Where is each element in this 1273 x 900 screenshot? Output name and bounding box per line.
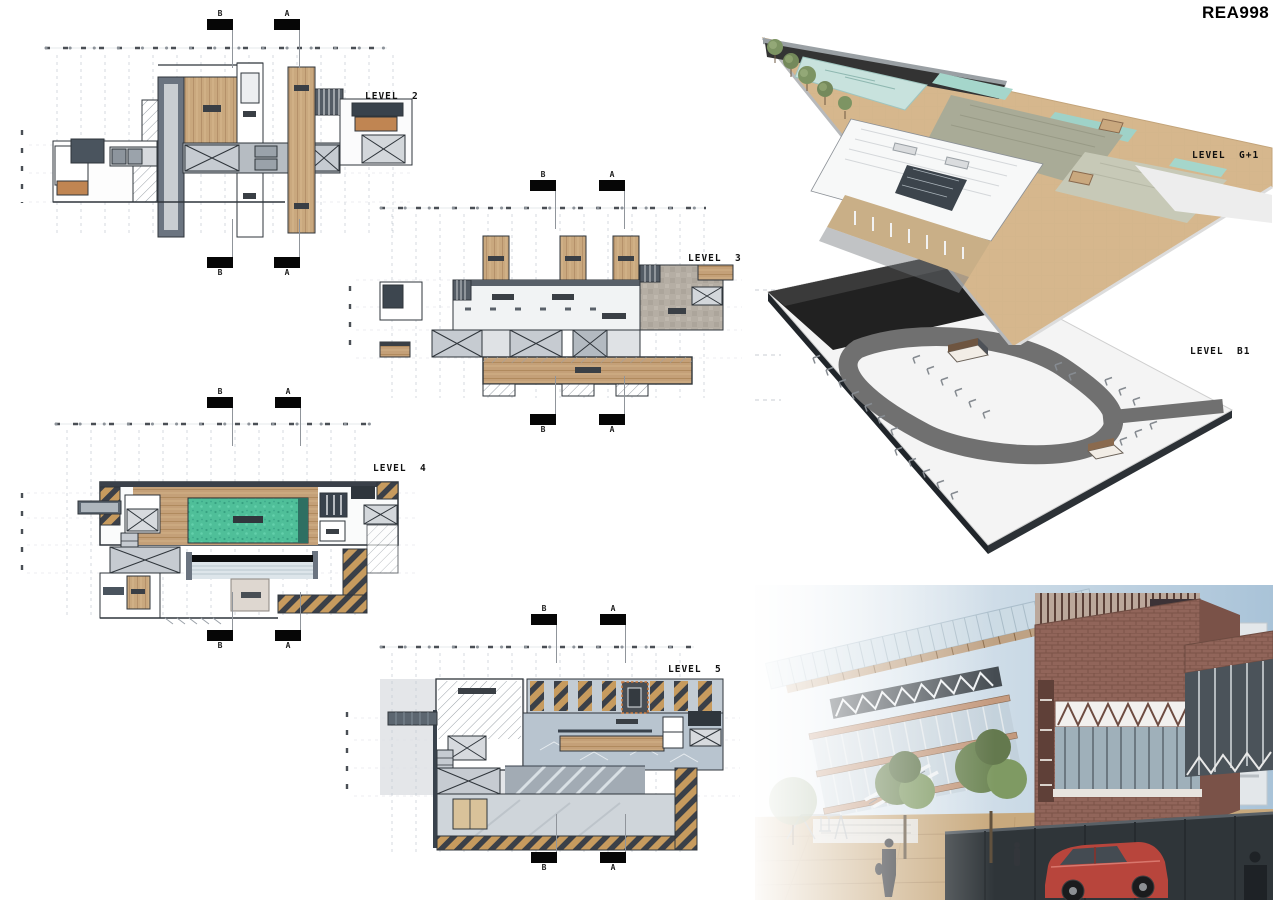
marker-letter: A: [611, 863, 616, 873]
shaft-x-terrace: [692, 287, 722, 305]
shaft-x-3: [362, 135, 405, 163]
cantilever-volume: [1185, 631, 1273, 777]
shaft-x-big: [110, 547, 180, 573]
floor-plan-level-5: LEVEL 5 B A B A: [330, 600, 762, 888]
marker-stem: [300, 592, 301, 630]
marker-flag: [530, 180, 556, 191]
truss-band: [1055, 701, 1200, 727]
section-marker-a-bottom: A: [596, 814, 630, 873]
section-marker-a-top: A: [271, 387, 305, 446]
marker-stem: [299, 30, 300, 68]
marker-stem: [625, 814, 626, 852]
section-marker-b-top: B: [526, 170, 560, 229]
marker-letter: B: [541, 425, 546, 435]
marker-letter: B: [218, 268, 223, 278]
section-marker-b-top: B: [203, 387, 237, 446]
level-4-label: LEVEL 4: [373, 463, 427, 474]
axonometric-level-g1: LEVEL G+1: [755, 15, 1273, 345]
marker-stem: [556, 814, 557, 852]
level-b1-label: LEVEL B1: [1190, 346, 1250, 357]
level-3-label: LEVEL 3: [688, 253, 742, 264]
marker-stem: [624, 191, 625, 229]
level-2-label: LEVEL 2: [365, 91, 419, 102]
marker-letter: A: [610, 170, 615, 180]
marker-flag: [275, 397, 301, 408]
section-marker-a-bottom: A: [595, 376, 629, 435]
marker-letter: B: [218, 387, 223, 397]
shaft-x-1: [185, 145, 239, 171]
level-g1-drawing: [755, 15, 1273, 345]
marker-flag: [530, 414, 556, 425]
marker-letter: A: [611, 604, 616, 614]
marker-letter: B: [542, 604, 547, 614]
marker-stem: [556, 625, 557, 663]
marker-flag: [207, 257, 233, 268]
pool: [188, 498, 308, 543]
marker-flag: [600, 614, 626, 625]
section-marker-b-top: B: [527, 604, 561, 663]
marker-stem: [555, 191, 556, 229]
section-marker-b-bottom: B: [527, 814, 561, 873]
level-3-plan-body: [380, 236, 733, 396]
shaft-x-room: [448, 736, 486, 760]
section-marker-a-bottom: A: [271, 592, 305, 651]
shaft-x-3: [573, 330, 607, 357]
marker-letter: B: [218, 641, 223, 651]
marker-flag: [207, 19, 233, 30]
shaft-x-right: [690, 729, 721, 746]
marker-letter: B: [218, 9, 223, 19]
marker-stem: [299, 219, 300, 257]
marker-flag: [599, 414, 625, 425]
marker-letter: A: [285, 268, 290, 278]
section-marker-a-top: A: [270, 9, 304, 68]
marker-letter: A: [286, 641, 291, 651]
shaft-x-right: [364, 505, 397, 524]
marker-flag: [274, 19, 300, 30]
pedestrian-mid: [1014, 842, 1020, 866]
section-marker-b-top: B: [203, 9, 237, 68]
exterior-render: [755, 585, 1273, 900]
marker-stem: [300, 408, 301, 446]
section-marker-a-top: A: [596, 604, 630, 663]
marker-flag: [275, 630, 301, 641]
marker-letter: A: [610, 425, 615, 435]
shaft-x-2: [510, 330, 562, 357]
section-marker-a-top: A: [595, 170, 629, 229]
marker-stem: [232, 408, 233, 446]
marker-flag: [599, 180, 625, 191]
marker-stem: [624, 376, 625, 414]
section-marker-a-bottom: A: [270, 219, 304, 278]
presentation-board: LEVEL B1: [0, 0, 1273, 900]
shaft-x-1: [432, 330, 482, 357]
marker-letter: A: [286, 387, 291, 397]
marker-flag: [531, 852, 557, 863]
marker-stem: [232, 219, 233, 257]
marker-flag: [274, 257, 300, 268]
level-g1-label: LEVEL G+1: [1192, 150, 1259, 161]
haze-overlay: [755, 585, 995, 900]
board-code: REA998: [1202, 3, 1269, 23]
marker-flag: [207, 397, 233, 408]
marker-stem: [555, 376, 556, 414]
section-marker-b-bottom: B: [203, 592, 237, 651]
marker-flag: [600, 852, 626, 863]
marker-flag: [531, 614, 557, 625]
red-car: [1045, 842, 1168, 900]
marker-letter: B: [542, 863, 547, 873]
marker-stem: [232, 30, 233, 68]
shaft-x-big: [437, 768, 500, 794]
stair: [315, 89, 343, 115]
marker-flag: [207, 630, 233, 641]
shaft-x-annex: [127, 509, 158, 531]
marker-stem: [232, 592, 233, 630]
section-marker-b-bottom: B: [203, 219, 237, 278]
marker-letter: B: [541, 170, 546, 180]
level-5-label: LEVEL 5: [668, 664, 722, 675]
render-drawing: [755, 585, 1273, 900]
section-marker-b-bottom: B: [526, 376, 560, 435]
marker-letter: A: [285, 9, 290, 19]
marker-stem: [625, 625, 626, 663]
